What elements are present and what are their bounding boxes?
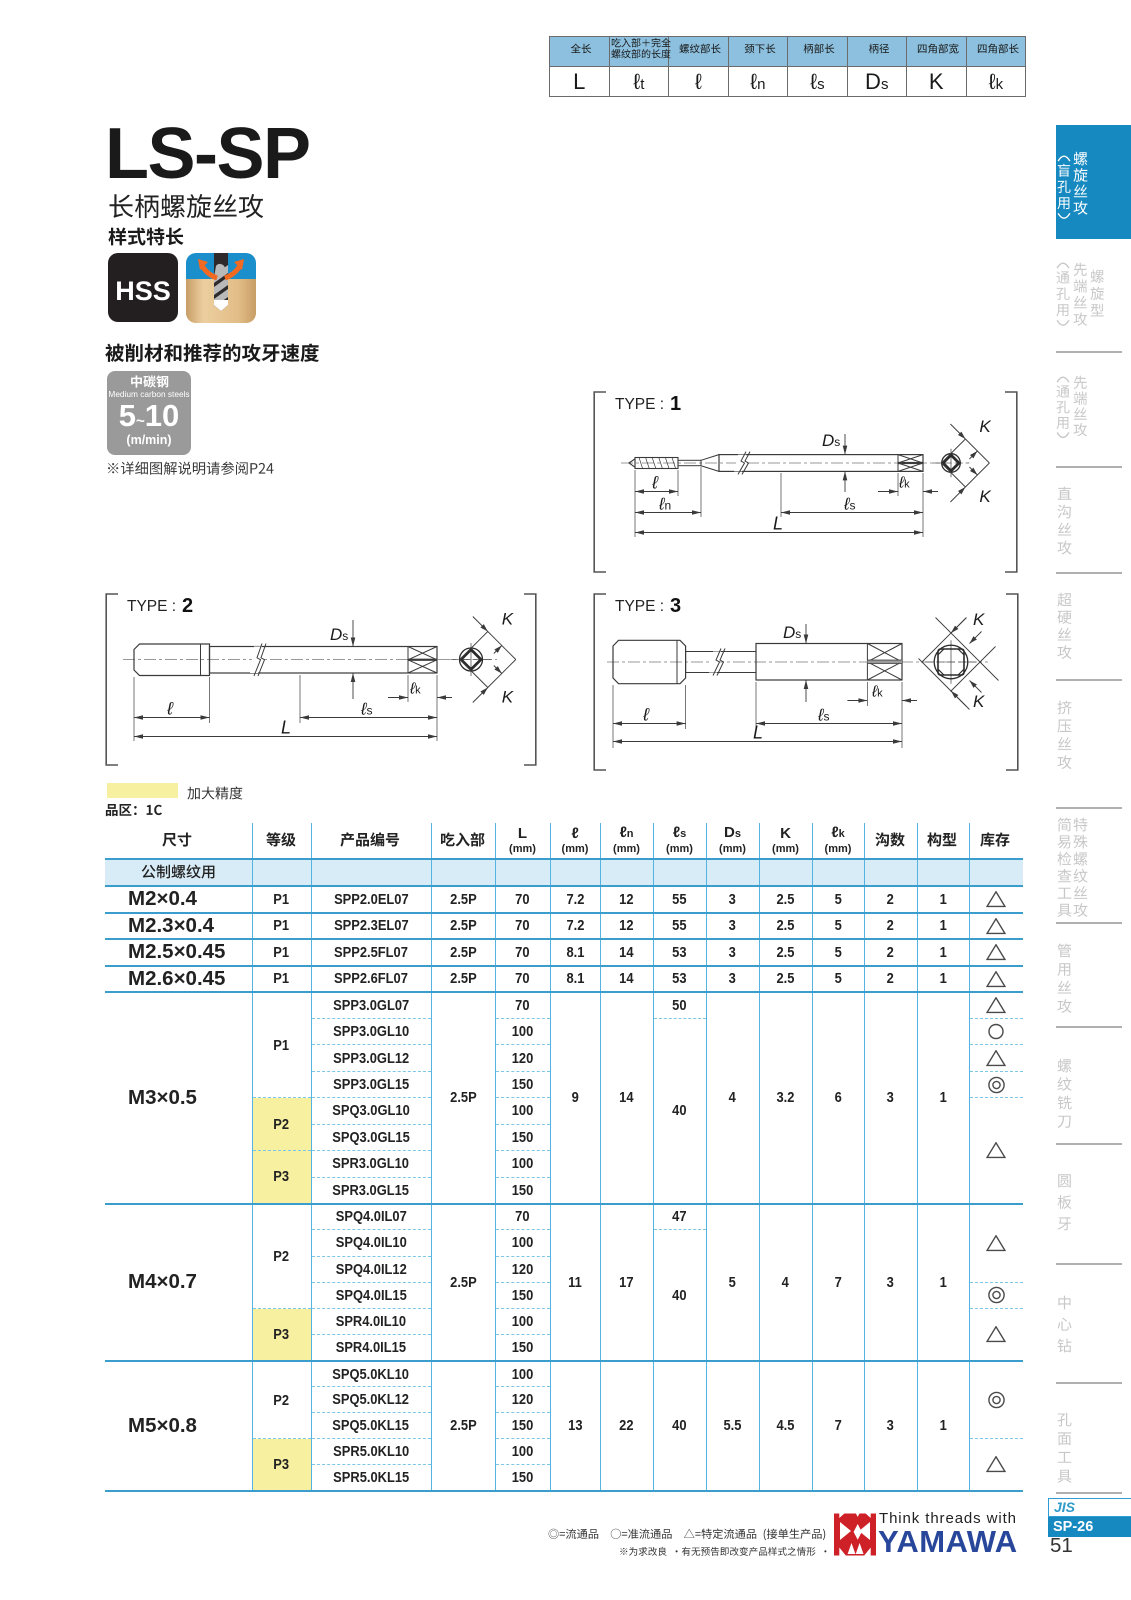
svg-text:ℓk: ℓk: [409, 681, 421, 698]
svg-text:ℓk: ℓk: [898, 475, 910, 492]
svg-text:2: 2: [182, 595, 193, 617]
svg-text:ℓs: ℓs: [817, 706, 830, 725]
svg-text:TYPE :: TYPE :: [127, 598, 176, 615]
svg-text:L: L: [773, 514, 783, 534]
svg-text:K: K: [502, 688, 514, 707]
svg-text:1: 1: [670, 393, 681, 415]
svg-text:TYPE :: TYPE :: [615, 396, 664, 413]
svg-text:L: L: [281, 718, 291, 738]
svg-text:K: K: [979, 417, 991, 436]
svg-text:ℓn: ℓn: [658, 495, 671, 514]
svg-text:K: K: [973, 692, 985, 711]
svg-text:K: K: [973, 610, 985, 629]
svg-text:Ds: Ds: [330, 625, 348, 644]
svg-text:ℓk: ℓk: [871, 684, 883, 701]
svg-text:Ds: Ds: [822, 431, 840, 450]
svg-text:K: K: [502, 610, 514, 629]
svg-text:ℓs: ℓs: [843, 495, 856, 514]
svg-text:TYPE :: TYPE :: [615, 598, 664, 615]
svg-text:ℓ: ℓ: [166, 699, 174, 719]
svg-text:ℓ: ℓ: [651, 473, 659, 493]
svg-text:Ds: Ds: [783, 623, 801, 642]
svg-text:K: K: [979, 487, 991, 506]
svg-text:3: 3: [670, 595, 681, 617]
svg-text:ℓ: ℓ: [642, 705, 650, 725]
svg-text:ℓs: ℓs: [360, 700, 373, 719]
svg-text:L: L: [753, 723, 763, 743]
